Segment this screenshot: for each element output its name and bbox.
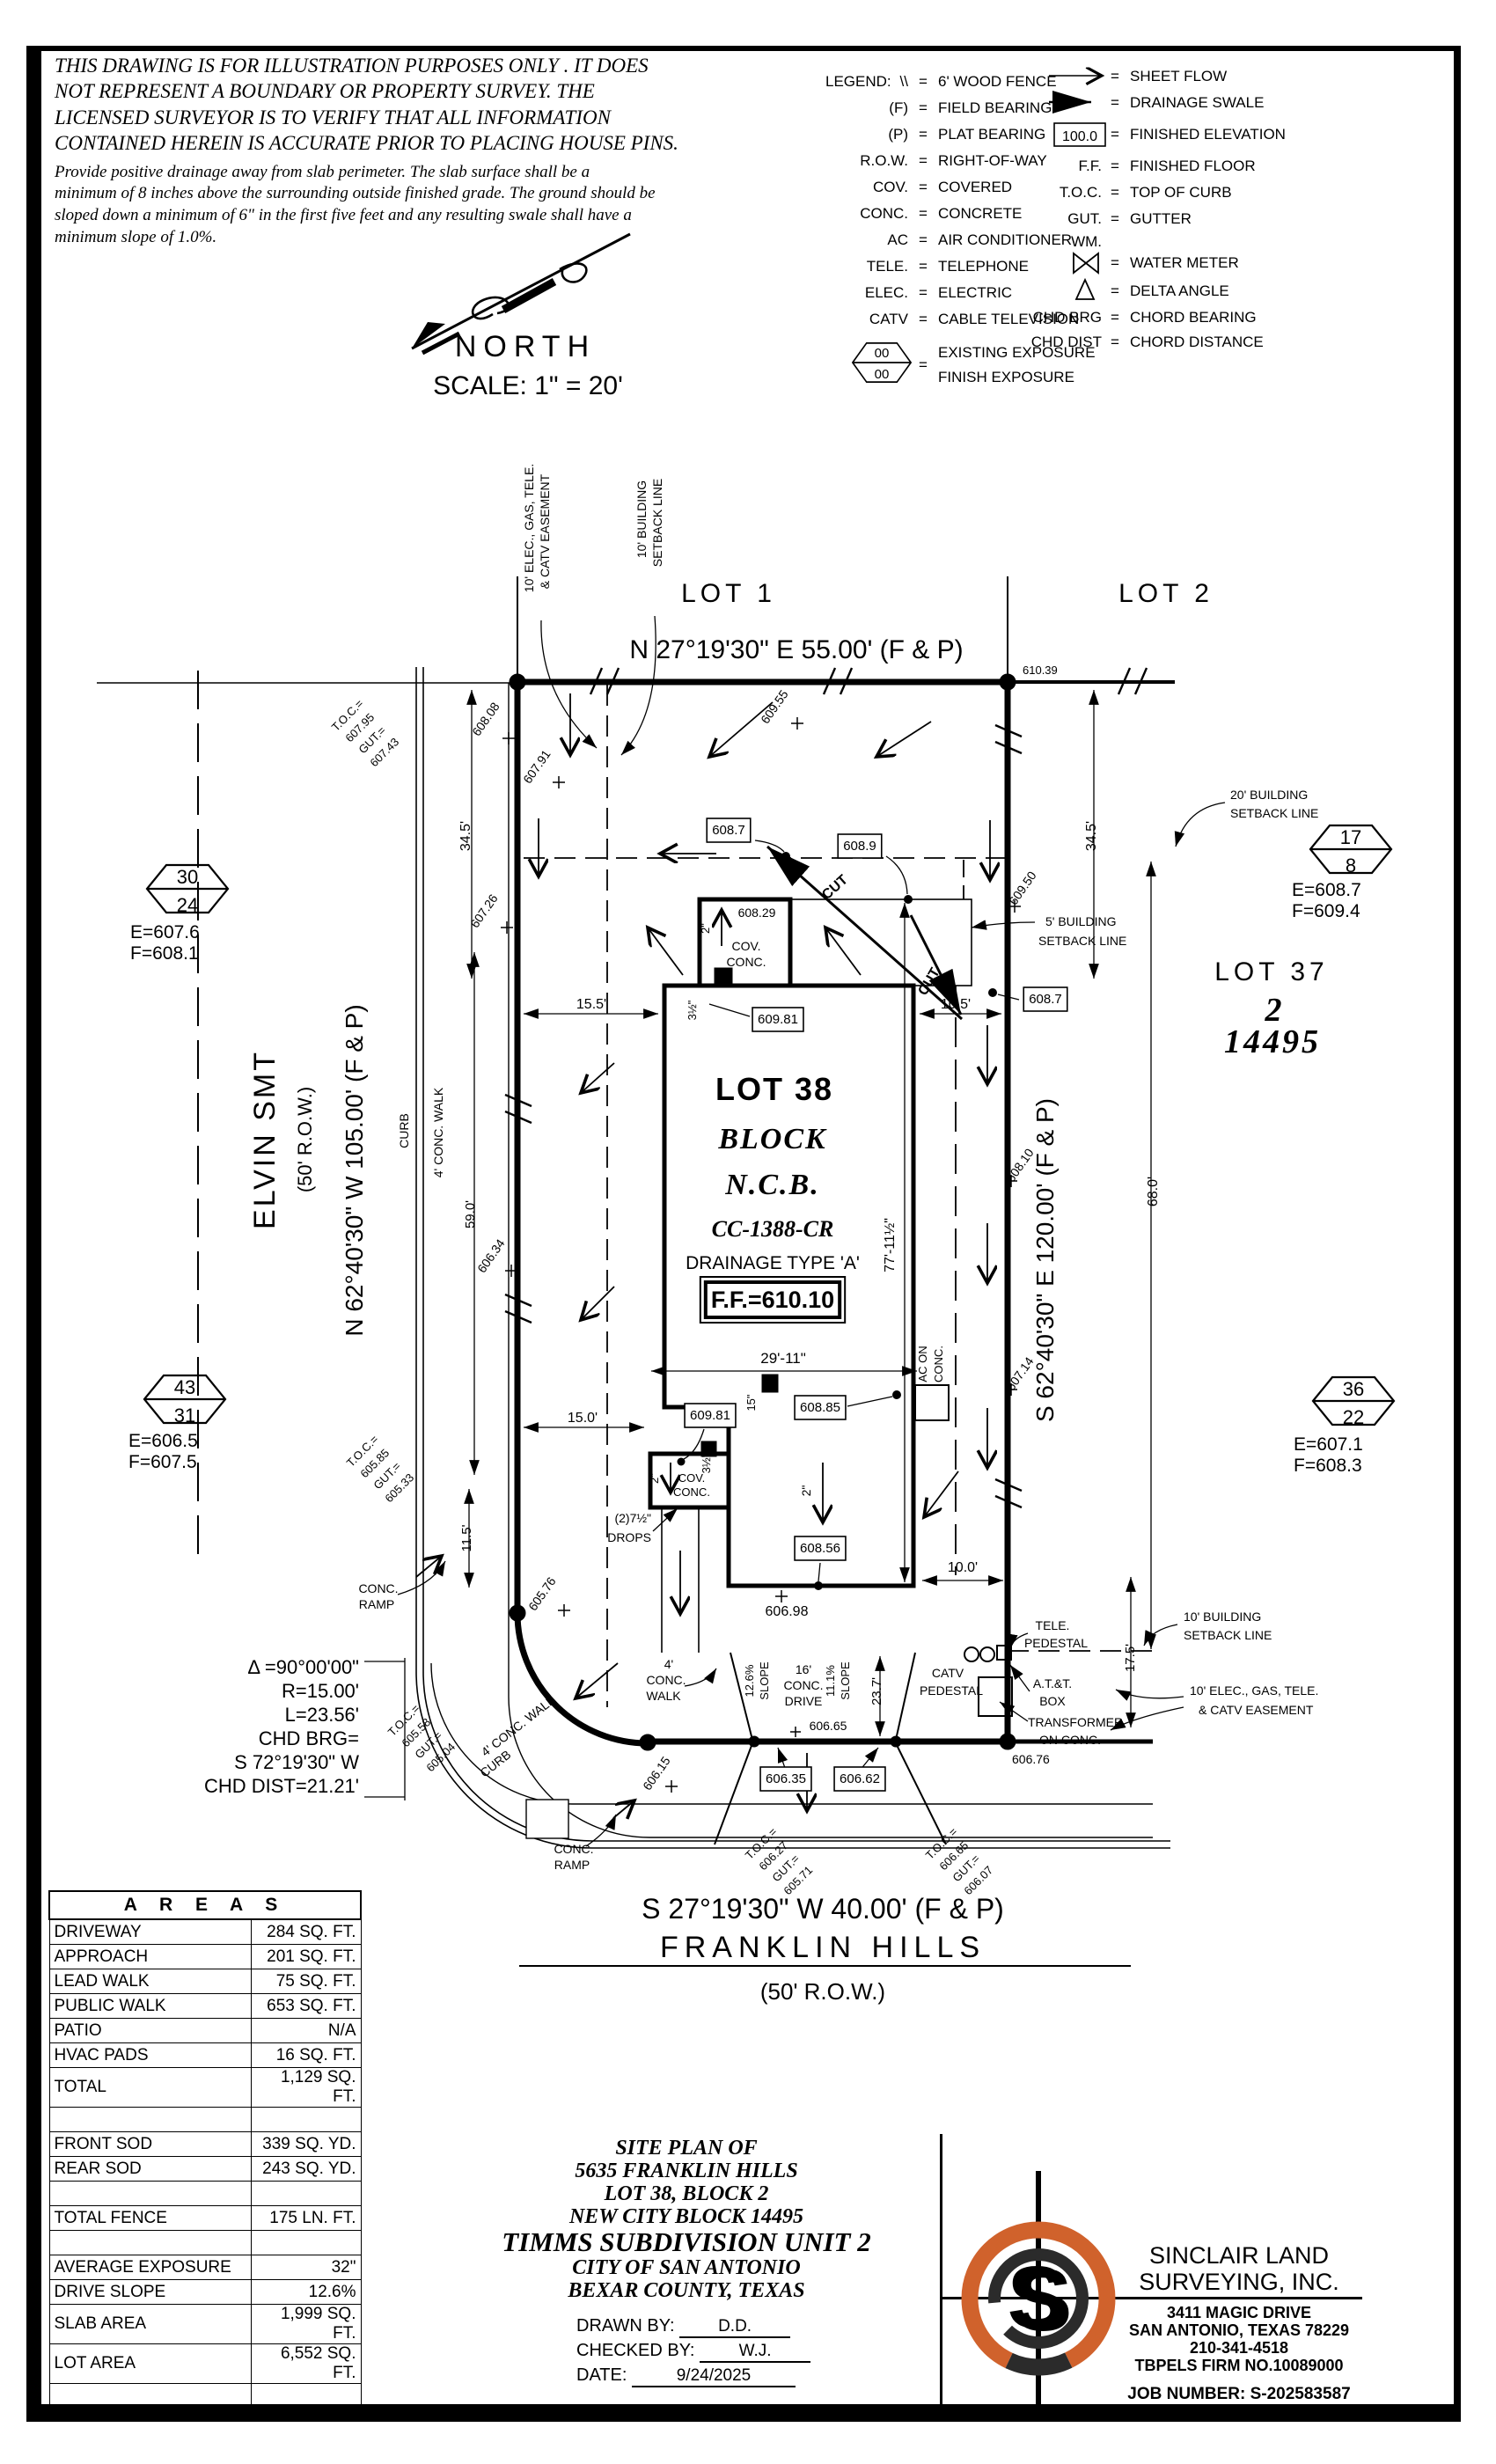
cov-conc-bot-2: CONC. [673, 1485, 710, 1499]
catv-pedestal-1: CATV [932, 1666, 964, 1680]
hex-30-f: F=608.1 [130, 943, 199, 964]
legend-eq: = [919, 152, 928, 169]
legend-sym-plat-bearing: (P) [888, 126, 908, 143]
elev-606-35: 606.35 [766, 1771, 806, 1786]
walk-bottom-2: CONC. [646, 1673, 686, 1687]
curb-label-left: CURB [397, 1113, 411, 1148]
spot-606-76: 606.76 [1012, 1752, 1050, 1766]
corner-pin-se [1000, 1734, 1016, 1749]
hex-24: 24 [177, 894, 198, 916]
legend-eq: = [919, 356, 928, 373]
areas-row-value [252, 2108, 361, 2132]
att-box-1: A.T.&T. [1033, 1676, 1072, 1690]
hex-8: 8 [1346, 854, 1356, 876]
setback-20-label-1: 20' BUILDING [1230, 788, 1308, 802]
areas-row [49, 2384, 361, 2409]
dim-34-5-right: 34.5' [1084, 821, 1099, 851]
spot-607-26: 607.26 [467, 891, 501, 930]
areas-row-value [252, 2384, 361, 2409]
title-block-line: SITE PLAN OF [378, 2137, 994, 2160]
areas-row-label: LOT AREA [49, 2344, 252, 2384]
areas-row-value: 1,129 SQ. FT. [252, 2068, 361, 2108]
catv-pedestal-2: PEDESTAL [920, 1683, 983, 1698]
spot-610-39: 610.39 [1023, 664, 1058, 677]
areas-row-label: PUBLIC WALK [49, 1994, 252, 2019]
block-label: BLOCK [717, 1123, 827, 1155]
areas-row-label: TOTAL [49, 2068, 252, 2108]
ac-pad [915, 1385, 949, 1420]
legend-eq: = [1111, 68, 1119, 84]
legend-hex-top: 00 [875, 346, 890, 361]
legend-label-row: RIGHT-OF-WAY [938, 152, 1047, 169]
legend-hex-bottom: 00 [875, 367, 890, 382]
checked-by-value: W.J. [700, 2342, 810, 2363]
legend-label-finished-elevation: FINISHED ELEVATION [1130, 126, 1286, 143]
corner-pin-ne [1000, 674, 1016, 690]
lot37-label: LOT 37 [1214, 957, 1329, 986]
ncb-label: N.C.B. [724, 1169, 819, 1201]
firm-name-line2: SURVEYING, INC. [1111, 2269, 1368, 2295]
hex-17: 17 [1340, 826, 1361, 848]
areas-row-label: TOTAL FENCE [49, 2206, 252, 2231]
legend-label-chord-bearing: CHORD BEARING [1130, 309, 1257, 326]
checked-by-label: CHECKED BY: [576, 2341, 694, 2361]
elev-608-9: 608.9 [843, 839, 876, 854]
porch-post-top [715, 968, 732, 984]
bearing-east: S 62°40'30" E 120.00' (F & P) [1031, 1098, 1059, 1422]
areas-row-label: DRIVE SLOPE [49, 2280, 252, 2305]
dim-10-0: 10.0' [948, 1560, 978, 1575]
areas-table-title: A R E A S [49, 1891, 361, 1919]
drops-label-2: DROPS [607, 1530, 651, 1544]
legend-sym-catv: CATV [869, 311, 909, 327]
cov-conc-top-1: COV. [732, 939, 761, 953]
legend-eq: = [1111, 210, 1119, 227]
areas-row-label [49, 2231, 252, 2255]
bearing-south: S 27°19'30" W 40.00' (F & P) [642, 1893, 1004, 1925]
setback-20-label-2: SETBACK LINE [1230, 806, 1318, 820]
spot-606-34: 606.34 [474, 1236, 508, 1275]
slope-111-1: 11.1% [824, 1665, 837, 1697]
legend-eq: = [919, 311, 928, 327]
ac-label-2: CONC. [932, 1346, 945, 1382]
dim-15in: 15" [744, 1394, 758, 1411]
areas-row-label: FRONT SOD [49, 2132, 252, 2157]
legend-sym-wood-fence: \\ [900, 73, 909, 90]
legend-sym-toc: T.O.C. [1060, 184, 1102, 201]
date-label: DATE: [576, 2365, 627, 2386]
hex-36-f: F=608.3 [1294, 1456, 1362, 1476]
title-block-line: BEXAR COUNTY, TEXAS [378, 2279, 994, 2302]
spot-606-65: 606.65 [810, 1719, 847, 1733]
ac-label-1: AC ON [916, 1346, 929, 1382]
ramp-left-2: RAMP [359, 1597, 394, 1611]
areas-row: DRIVE SLOPE12.6% [49, 2280, 361, 2305]
logo-letter: S [1008, 2248, 1067, 2347]
hex-43-e: E=606.5 [128, 1431, 198, 1451]
approach-edge-left [715, 1743, 752, 1844]
dim-3half-b: 3½" [700, 1453, 713, 1473]
title-block-line: NEW CITY BLOCK 14495 [378, 2205, 994, 2228]
setback-5-label-1: 5' BUILDING [1045, 914, 1116, 928]
legend-title: LEGEND: [825, 73, 891, 90]
hex-17-f: F=609.4 [1292, 901, 1360, 921]
title-block-line: LOT 38, BLOCK 2 [378, 2182, 994, 2205]
drive-16-1: 16' [796, 1662, 811, 1676]
firm-name-line1: SINCLAIR LAND [1111, 2242, 1368, 2269]
dim-15-0: 15.0' [568, 1411, 598, 1426]
dim-11-5: 11.5' [459, 1524, 474, 1551]
legend-eq: = [1111, 158, 1119, 174]
setback-10-right-1: 10' BUILDING [1184, 1610, 1261, 1624]
areas-row-value: 75 SQ. FT. [252, 1969, 361, 1994]
title-block: SITE PLAN OF5635 FRANKLIN HILLSLOT 38, B… [378, 2137, 994, 2302]
areas-row-label: LEAD WALK [49, 1969, 252, 1994]
areas-row: APPROACH201 SQ. FT. [49, 1945, 361, 1969]
legend-label-gutter: GUTTER [1130, 210, 1192, 227]
spot-608-29: 608.29 [738, 906, 776, 920]
legend-label-field-bearing: FIELD BEARING [938, 99, 1052, 116]
legend-eq: = [919, 231, 928, 248]
conc-ramp-bottom-shape [526, 1800, 568, 1838]
lot38-label: LOT 38 [715, 1071, 833, 1107]
row-franklin: (50' R.O.W.) [760, 1978, 885, 2005]
delta-1: Δ =90°00'00" [247, 1656, 359, 1678]
areas-row: LEAD WALK75 SQ. FT. [49, 1969, 361, 1994]
legend-sym-chd-dist: CHD DIST [1031, 334, 1102, 350]
areas-row-value: 1,999 SQ. FT. [252, 2305, 361, 2344]
delta-6: CHD DIST=21.21' [204, 1775, 359, 1797]
legend-sym-cov: COV. [873, 179, 908, 195]
legend-label-delta-angle: DELTA ANGLE [1130, 282, 1229, 299]
areas-row-value: 6,552 SQ. FT. [252, 2344, 361, 2384]
sinclair-logo: S S [956, 2171, 1123, 2414]
areas-row-label: PATIO [49, 2019, 252, 2043]
areas-row-value: 175 LN. FT. [252, 2206, 361, 2231]
legend-sym-conc: CONC. [860, 205, 908, 222]
legend-eq: = [1111, 94, 1119, 111]
areas-table: A R E A S DRIVEWAY284 SQ. FT.APPROACH201… [48, 1890, 362, 2409]
legend-sym-field-bearing: (F) [889, 99, 908, 116]
areas-row-value: 32" [252, 2255, 361, 2280]
areas-row-label: SLAB AREA [49, 2305, 252, 2344]
transformer-2: ON CONC. [1039, 1733, 1101, 1747]
easement-top-label-1: 10' ELEC., GAS, TELE. [522, 464, 536, 592]
firm-address-line2: SAN ANTONIO, TEXAS 78229 [1111, 2321, 1368, 2339]
spot-606-98: 606.98 [766, 1604, 809, 1619]
row-elvin: (50' R.O.W.) [294, 1087, 316, 1192]
legend-eq: = [1111, 126, 1119, 143]
delta-2: R=15.00' [282, 1680, 359, 1702]
legend-label-tele: TELEPHONE [938, 258, 1029, 275]
lot1-label: LOT 1 [681, 579, 776, 608]
hex-43-f: F=607.5 [128, 1452, 197, 1472]
areas-row-value [252, 2231, 361, 2255]
spot-609-50: 609.50 [1006, 869, 1039, 907]
dim-2in-porchtop: 2" [699, 923, 712, 934]
dim-34-5-left: 34.5' [458, 821, 473, 851]
legend-eq: = [1111, 334, 1119, 350]
approach-edge-right [896, 1743, 946, 1844]
walk-bottom-1: 4' [664, 1657, 673, 1671]
firm-job-number: JOB NUMBER: S-202583587 [1111, 2385, 1368, 2404]
areas-row: AVERAGE EXPOSURE32" [49, 2255, 361, 2280]
signature-block: DRAWN BY: D.D. CHECKED BY: W.J. DATE: 9/… [576, 2316, 893, 2390]
areas-row: LOT AREA6,552 SQ. FT. [49, 2344, 361, 2384]
legend-sym-gut: GUT. [1067, 210, 1102, 227]
areas-row: FRONT SOD339 SQ. YD. [49, 2132, 361, 2157]
firm-phone: 210-341-4518 [1111, 2339, 1368, 2357]
delta-angle-icon [1076, 280, 1094, 299]
easement-right-2: & CATV EASEMENT [1199, 1703, 1314, 1717]
legend-label-wood-fence: 6' WOOD FENCE [938, 73, 1057, 90]
walk-bottom-3: WALK [646, 1689, 681, 1703]
ff-elevation: F.F.=610.10 [711, 1287, 834, 1313]
dim-2in-house: 2" [799, 1485, 813, 1497]
legend-label-ac: AIR CONDITIONER [938, 231, 1072, 248]
legend-eq: = [919, 126, 928, 143]
ramp-bottom-2: RAMP [554, 1858, 590, 1872]
drawn-by-value: D.D. [679, 2317, 790, 2338]
finished-elevation-icon: 100.0 [1054, 123, 1105, 146]
setback-5-label-2: SETBACK LINE [1038, 934, 1126, 948]
title-block-line: CITY OF SAN ANTONIO [378, 2256, 994, 2279]
legend-eq: = [1111, 184, 1119, 201]
elev-608-7-a: 608.7 [712, 823, 745, 838]
elev-606-62: 606.62 [840, 1771, 880, 1786]
firm-block-divider [940, 2134, 942, 2404]
areas-row-value: 16 SQ. FT. [252, 2043, 361, 2068]
cov-conc-top-2: CONC. [726, 955, 766, 969]
transformer-1: TRANSFORMER [1028, 1715, 1123, 1729]
areas-row-label [49, 2108, 252, 2132]
survey-sheet: THIS DRAWING IS FOR ILLUSTRATION PURPOSE… [0, 0, 1496, 2464]
firm-address: 3411 MAGIC DRIVE SAN ANTONIO, TEXAS 7822… [1111, 2304, 1368, 2374]
legend-eq: = [919, 179, 928, 195]
legend-left-labels: =6' WOOD FENCE =FIELD BEARING =PLAT BEAR… [919, 73, 1079, 327]
areas-row: PUBLIC WALK653 SQ. FT. [49, 1994, 361, 2019]
dim-15-5: 15.5' [576, 997, 606, 1012]
dim-59-0: 59.0' [463, 1200, 478, 1228]
hex-22: 22 [1343, 1406, 1364, 1428]
lot2-label: LOT 2 [1118, 579, 1214, 608]
ncb-14495-label: 14495 [1224, 1023, 1321, 1060]
dim-23-7: 23.7' [869, 1677, 884, 1705]
legend-label-top-of-curb: TOP OF CURB [1130, 184, 1232, 201]
elev-608-85: 608.85 [800, 1400, 840, 1415]
cc-1388-label: CC-1388-CR [712, 1216, 834, 1242]
areas-row: TOTAL FENCE175 LN. FT. [49, 2206, 361, 2231]
areas-row-label: APPROACH [49, 1945, 252, 1969]
slope-126-1: 12.6% [743, 1664, 756, 1697]
ramp-left-1: CONC. [358, 1581, 398, 1595]
slope-126-2: SLOPE [758, 1661, 771, 1700]
legend-right-labels: =SHEET FLOW =DRAINAGE SWALE =FINISHED EL… [1111, 68, 1286, 350]
drive-16-3: DRIVE [785, 1694, 823, 1708]
dim-29-11: 29'-11" [760, 1350, 806, 1367]
legend-eq: = [1111, 254, 1119, 271]
delta-3: L=23.56' [285, 1704, 359, 1726]
easement-right-1: 10' ELEC., GAS, TELE. [1190, 1683, 1318, 1698]
areas-row [49, 2108, 361, 2132]
legend-sym-row: R.O.W. [860, 152, 908, 169]
areas-row-value: N/A [252, 2019, 361, 2043]
legend-exposure-hex-icon: 00 00 [853, 343, 911, 382]
areas-row-label [49, 2384, 252, 2409]
setback-10-right-2: SETBACK LINE [1184, 1628, 1272, 1642]
title-block-line: 5635 FRANKLIN HILLS [378, 2160, 994, 2182]
areas-row-label: HVAC PADS [49, 2043, 252, 2068]
legend-eq: = [919, 99, 928, 116]
tele-pedestal-2: PEDESTAL [1024, 1636, 1088, 1650]
elev-608-7-b: 608.7 [1029, 992, 1062, 1007]
areas-row-label: DRIVEWAY [49, 1919, 252, 1945]
drive-edge-right [896, 1653, 915, 1740]
elev-609-81-a: 609.81 [758, 1012, 798, 1027]
areas-row-value [252, 2182, 361, 2206]
areas-row: PATION/A [49, 2019, 361, 2043]
bearing-north: N 27°19'30" E 55.00' (F & P) [629, 635, 963, 664]
delta-5: S 72°19'30" W [234, 1751, 359, 1773]
bearing-west: N 62°40'30" W 105.00' (F & P) [341, 1004, 368, 1336]
legend-eq: = [919, 205, 928, 222]
catv-pedestal-icon [964, 1647, 979, 1661]
areas-row: TOTAL1,129 SQ. FT. [49, 2068, 361, 2108]
areas-row: HVAC PADS16 SQ. FT. [49, 2043, 361, 2068]
scale-label: SCALE: 1" = 20' [433, 371, 623, 400]
property-line-corner-curve [517, 1613, 648, 1743]
dim-68-0: 68.0' [1146, 1177, 1161, 1206]
hex-36-e: E=607.1 [1294, 1434, 1363, 1455]
areas-row-value: 201 SQ. FT. [252, 1945, 361, 1969]
att-box-2: BOX [1039, 1694, 1066, 1708]
hex-31: 31 [174, 1404, 195, 1426]
drive-edge-pin-left [749, 1736, 759, 1747]
drops-label-1: (2)7½" [614, 1511, 651, 1525]
patio-slab [790, 899, 972, 986]
firm-name: SINCLAIR LAND SURVEYING, INC. [1111, 2242, 1368, 2295]
walk-label-left: 4' CONC. WALK [431, 1087, 445, 1177]
legend-label-cov: COVERED [938, 179, 1012, 195]
areas-row-value: 339 SQ. YD. [252, 2132, 361, 2157]
legend-label-sheet-flow: SHEET FLOW [1130, 68, 1227, 84]
legend-sym-wm: WM. [1071, 233, 1102, 250]
legend-label-plat-bearing: PLAT BEARING [938, 126, 1045, 143]
spot-608-08: 608.08 [469, 700, 502, 738]
setback-top-label-2: SETBACK LINE [650, 479, 664, 567]
setback-top-label-1: 10' BUILDING [634, 480, 649, 558]
legend-sym-chd-brg: CHD BRG [1033, 309, 1102, 326]
legend-sym-ff: F.F. [1079, 158, 1102, 174]
areas-row: DRIVEWAY284 SQ. FT. [49, 1919, 361, 1945]
dim-10-5: 10.5' [941, 997, 971, 1012]
areas-row [49, 2182, 361, 2206]
legend-sym-finished-elevation: 100.0 [1062, 129, 1097, 144]
dim-77-11: 77'-11½" [883, 1218, 898, 1272]
slope-111-2: SLOPE [839, 1661, 852, 1700]
tele-pedestal-1: TELE. [1036, 1618, 1070, 1632]
dim-17-5: 17.5' [1123, 1644, 1138, 1672]
cut-label-1: CUT [819, 872, 851, 903]
hex-43: 43 [174, 1376, 195, 1398]
legend: LEGEND: \\ (F) (P) R.O.W. COV. CONC. AC … [825, 68, 1286, 385]
date-value: 9/24/2025 [632, 2366, 796, 2387]
corner-pin-curve-start [510, 1605, 525, 1621]
legend-label-elec: ELECTRIC [938, 284, 1012, 301]
firm-address-line1: 3411 MAGIC DRIVE [1111, 2304, 1368, 2321]
spot-607-91: 607.91 [520, 747, 554, 786]
corner-pin-curve-end [640, 1734, 656, 1750]
legend-eq: = [1111, 309, 1119, 326]
water-meter-icon [1074, 253, 1098, 273]
areas-row-value: 243 SQ. YD. [252, 2157, 361, 2182]
dim-2in-porchbot: 2" [648, 1473, 661, 1484]
porch-post-mid [762, 1375, 778, 1392]
corner-pin-nw [510, 674, 525, 690]
areas-row-label: REAR SOD [49, 2157, 252, 2182]
areas-row-label [49, 2182, 252, 2206]
legend-eq: = [919, 73, 928, 90]
hex-30: 30 [177, 866, 198, 888]
ramp-bottom-1: CONC. [554, 1842, 593, 1856]
areas-row-value: 12.6% [252, 2280, 361, 2305]
dim-3half-a: 3½" [686, 1000, 699, 1020]
legend-eq: = [919, 284, 928, 301]
pedestal-icon [980, 1647, 994, 1661]
areas-row: REAR SOD243 SQ. YD. [49, 2157, 361, 2182]
legend-eq: = [919, 258, 928, 275]
legend-label-water-meter: WATER METER [1130, 254, 1239, 271]
areas-row-value: 653 SQ. FT. [252, 1994, 361, 2019]
elev-609-81-b: 609.81 [690, 1408, 730, 1423]
title-block-line: TIMMS SUBDIVISION UNIT 2 [378, 2228, 994, 2256]
delta-4: CHD BRG= [259, 1727, 359, 1749]
legend-sym-elec: ELEC. [865, 284, 908, 301]
legend-label-finished-floor: FINISHED FLOOR [1130, 158, 1256, 174]
areas-row-label: AVERAGE EXPOSURE [49, 2255, 252, 2280]
north-label: NORTH [455, 330, 596, 363]
easement-top-label-2: & CATV EASEMENT [538, 473, 552, 589]
areas-row [49, 2231, 361, 2255]
elev-608-56: 608.56 [800, 1541, 840, 1556]
street-elvin: ELVIN SMT [248, 1050, 282, 1229]
drawn-by-label: DRAWN BY: [576, 2316, 675, 2336]
areas-row-value: 284 SQ. FT. [252, 1919, 361, 1945]
drive-16-2: CONC. [783, 1678, 823, 1692]
areas-row: SLAB AREA1,999 SQ. FT. [49, 2305, 361, 2344]
firm-tbpels: TBPELS FIRM NO.10089000 [1111, 2357, 1368, 2374]
legend-label-conc: CONCRETE [938, 205, 1022, 222]
legend-sym-tele: TELE. [867, 258, 908, 275]
legend-eq: = [1111, 282, 1119, 299]
legend-label-drainage-swale: DRAINAGE SWALE [1130, 94, 1264, 111]
street-franklin: FRANKLIN HILLS [660, 1931, 986, 1964]
hex-36: 36 [1343, 1378, 1364, 1400]
drainage-type-label: DRAINAGE TYPE 'A' [686, 1253, 860, 1273]
spot-605-76: 605.76 [525, 1574, 559, 1613]
legend-sym-ac: AC [887, 231, 908, 248]
hex-17-e: E=608.7 [1292, 880, 1361, 900]
hex-30-e: E=607.6 [130, 922, 200, 942]
spot-609-55: 609.55 [758, 687, 791, 726]
legend-label-chord-distance: CHORD DISTANCE [1130, 334, 1264, 350]
legend-label-finish-exposure: FINISH EXPOSURE [938, 369, 1074, 385]
